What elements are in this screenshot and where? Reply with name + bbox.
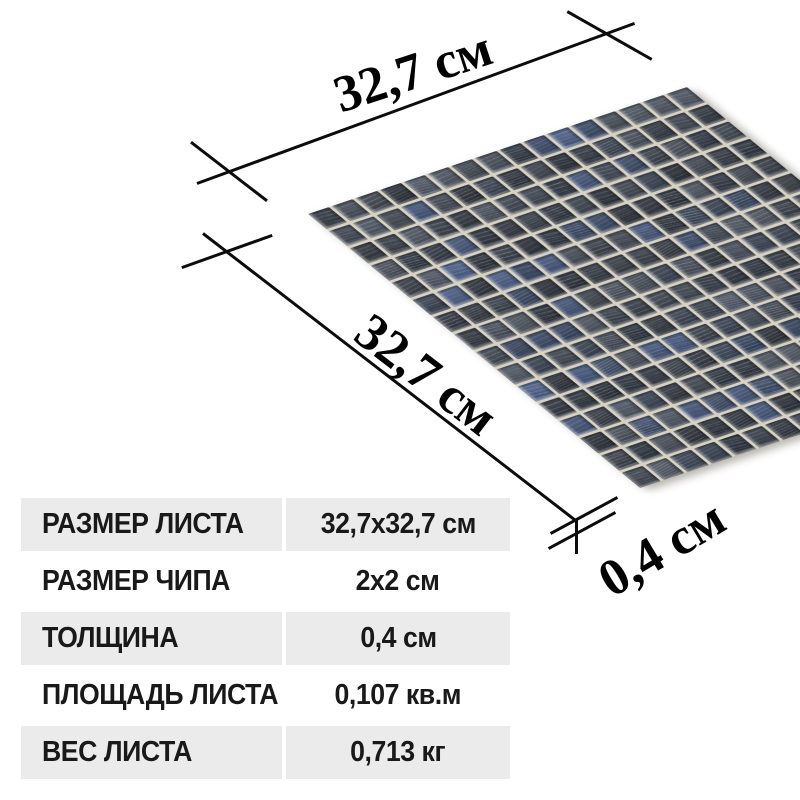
spec-row-label: ПЛОЩАДЬ ЛИСТА — [21, 669, 282, 722]
spec-table: РАЗМЕР ЛИСТА32,7x32,7 смРАЗМЕР ЧИПА2x2 с… — [21, 498, 510, 783]
table-row: ТОЛЩИНА0,4 см — [21, 612, 510, 665]
thickness-dimension-line — [575, 519, 578, 554]
sheet-width-dimension-label: 32,7 см — [327, 19, 500, 125]
dimension-tick — [181, 233, 272, 268]
spec-row-label-text: ТОЛЩИНА — [42, 624, 178, 653]
product-dimension-diagram: { "annotations": { "sheet_width_label": … — [0, 0, 800, 800]
spec-row-value-text: 2x2 см — [356, 567, 440, 596]
spec-row-value: 2x2 см — [286, 555, 510, 608]
table-row: РАЗМЕР ЛИСТА32,7x32,7 см — [21, 498, 510, 551]
spec-row-value: 0,107 кв.м — [286, 669, 510, 722]
spec-row-label-text: РАЗМЕР ЧИПА — [42, 567, 230, 596]
spec-row-label-text: РАЗМЕР ЛИСТА — [42, 510, 244, 539]
spec-row-label: ВЕС ЛИСТА — [21, 726, 282, 779]
spec-row-value: 0,713 кг — [286, 726, 510, 779]
spec-row-label: РАЗМЕР ЧИПА — [21, 555, 282, 608]
spec-row-label-text: ПЛОЩАДЬ ЛИСТА — [42, 681, 278, 710]
spec-row-label: РАЗМЕР ЛИСТА — [21, 498, 282, 551]
spec-row-value-text: 32,7x32,7 см — [320, 510, 475, 539]
spec-row-value: 0,4 см — [286, 612, 510, 665]
thickness-dimension-label: 0,4 см — [588, 489, 735, 610]
table-row: РАЗМЕР ЧИПА2x2 см — [21, 555, 510, 608]
dimension-tick — [190, 140, 268, 201]
spec-row-value-text: 0,4 см — [360, 624, 436, 653]
spec-row-value: 32,7x32,7 см — [286, 498, 510, 551]
spec-row-value-text: 0,713 кг — [351, 738, 446, 767]
table-row: ВЕС ЛИСТА0,713 кг — [21, 726, 510, 779]
spec-row-label-text: ВЕС ЛИСТА — [42, 738, 192, 767]
table-row: ПЛОЩАДЬ ЛИСТА0,107 кв.м — [21, 669, 510, 722]
dimension-tick — [567, 10, 653, 60]
spec-row-value-text: 0,107 кв.м — [335, 681, 461, 710]
spec-row-label: ТОЛЩИНА — [21, 612, 282, 665]
mosaic-sheet — [308, 87, 800, 488]
